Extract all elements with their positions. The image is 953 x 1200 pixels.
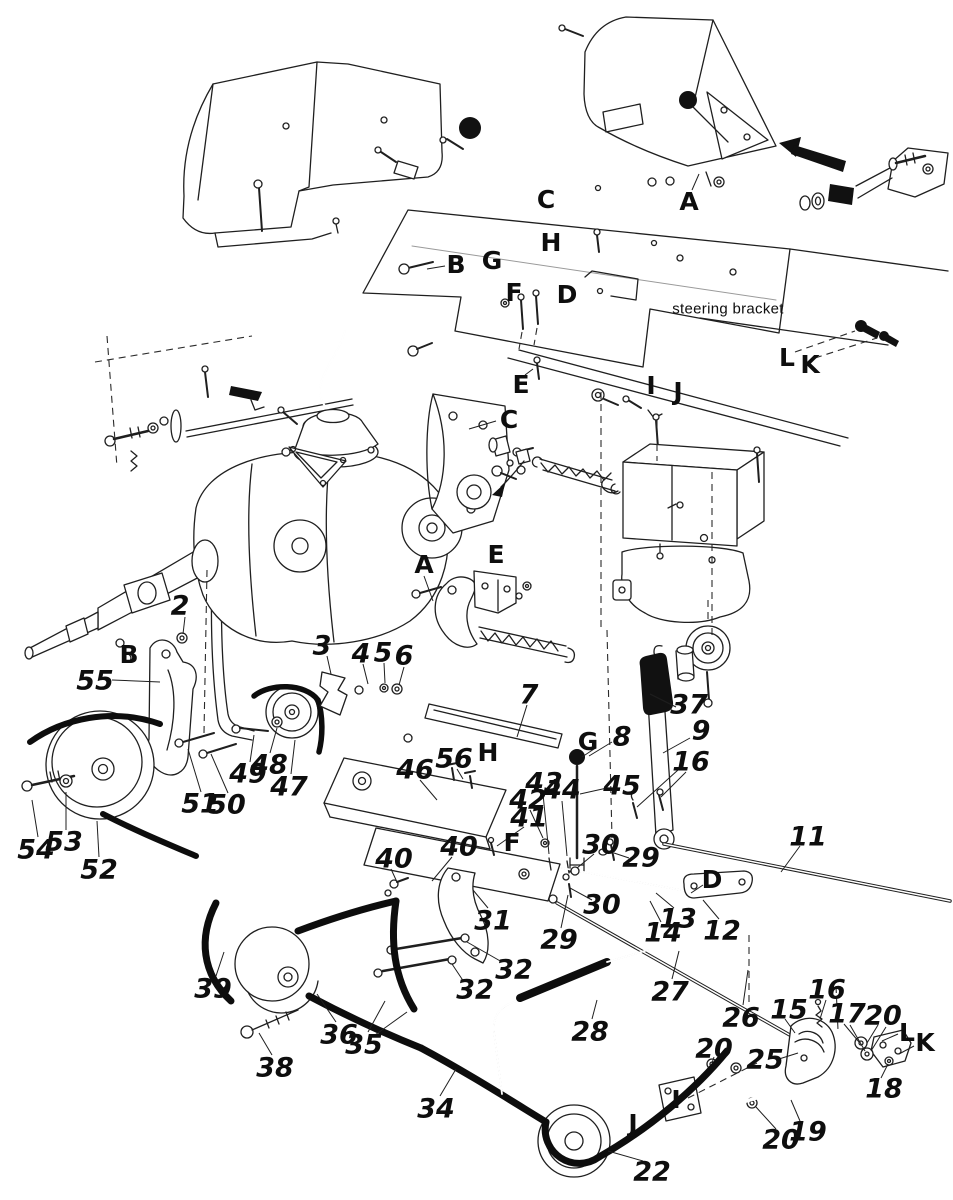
part-36: 36	[320, 1019, 358, 1050]
ref-J-bot: J	[626, 1109, 637, 1138]
ref-C-mid: C	[500, 405, 518, 434]
part-30b: 30	[583, 889, 621, 920]
support-plate-C	[432, 394, 509, 533]
part-26: 26	[722, 1002, 760, 1033]
leader-line	[672, 951, 679, 979]
ref-K-top: K	[800, 350, 821, 379]
lever-grip	[640, 653, 674, 715]
leader-line	[743, 970, 748, 1005]
ref-A-top: A	[679, 187, 699, 216]
knob-ball-left	[459, 117, 481, 139]
part-30a: 30	[582, 829, 620, 860]
knob-ball-right	[679, 91, 697, 109]
part-27: 27	[651, 976, 689, 1007]
part-40a: 40	[439, 831, 478, 862]
ref-H-top: H	[541, 228, 562, 257]
part-25: 25	[746, 1044, 784, 1075]
part-55: 55	[76, 665, 114, 696]
part-18: 18	[865, 1073, 903, 1104]
ref-E-mid: E	[487, 540, 504, 569]
part-44: 44	[542, 774, 581, 805]
leader-line	[97, 821, 99, 857]
ref-J-top: J	[671, 377, 682, 406]
part-20c: 20	[762, 1124, 800, 1155]
ref-I-bot: I	[671, 1085, 680, 1114]
ref-L-top: L	[779, 343, 795, 372]
part-29a: 29	[622, 842, 660, 873]
part-5: 5	[374, 637, 393, 668]
nut-2	[177, 633, 187, 643]
leader-line	[211, 754, 228, 793]
ref-D-top: D	[557, 280, 578, 309]
ref-F-top: F	[505, 278, 522, 307]
leader-line	[216, 952, 224, 976]
shifter-cover	[559, 17, 776, 191]
ref-B-left: B	[119, 640, 138, 669]
part-29b: 29	[540, 924, 578, 955]
ref-E-top: E	[512, 370, 529, 399]
double-pulley-36	[235, 927, 309, 1001]
roller-black	[828, 184, 854, 205]
part-16a: 16	[672, 746, 710, 777]
clip-3	[320, 672, 347, 715]
leader-line	[561, 895, 568, 928]
part-14: 14	[644, 917, 682, 948]
part-11: 11	[789, 821, 827, 852]
construction-line	[107, 336, 117, 467]
channel-box-bracket	[623, 462, 737, 546]
ref-G-mid: G	[578, 727, 599, 756]
construction-line	[95, 336, 252, 362]
bracket-55	[148, 640, 197, 775]
exploded-parts-diagram: steering bracketCAHBGFDLKEIJCEABGHFDLKIJ…	[0, 0, 953, 1200]
part-38: 38	[256, 1052, 294, 1083]
part-22: 22	[633, 1156, 671, 1187]
part-45: 45	[602, 770, 641, 801]
part-20a: 20	[864, 1000, 902, 1031]
leader-line	[291, 740, 295, 774]
construction-line	[815, 338, 877, 358]
part-54: 54	[17, 834, 55, 865]
diagram-canvas: steering bracketCAHBGFDLKEIJCEABGHFDLKIJ…	[0, 0, 953, 1200]
part-32b: 32	[456, 974, 494, 1005]
part-7: 7	[520, 679, 539, 710]
part-34: 34	[417, 1093, 455, 1124]
part-17: 17	[828, 998, 866, 1029]
leader-line	[562, 801, 567, 856]
ref-B-top: B	[446, 250, 465, 279]
part-12: 12	[703, 915, 741, 946]
bolt-B	[399, 264, 409, 274]
bracket-E	[474, 571, 516, 613]
ref-I-top: I	[646, 371, 655, 400]
part-39: 39	[194, 973, 232, 1004]
part-56: 56	[435, 743, 473, 774]
ref-A-mid: A	[414, 550, 434, 579]
part-3: 3	[313, 630, 332, 661]
part-6: 6	[395, 640, 414, 671]
note-steering-bracket: steering bracket	[672, 300, 784, 317]
part-37: 37	[670, 689, 708, 720]
ref-K-bot: K	[915, 1028, 936, 1057]
ref-G-top: G	[482, 246, 503, 275]
part-40b: 40	[374, 843, 413, 874]
idler-mount-group	[602, 414, 764, 707]
ref-D-mid: D	[702, 865, 723, 894]
part-2: 2	[171, 590, 190, 621]
construction-line	[607, 630, 612, 838]
part-20b: 20	[695, 1033, 733, 1064]
idler-bracket-plate	[622, 546, 750, 622]
part-31: 31	[474, 905, 512, 936]
part-28: 28	[571, 1016, 609, 1047]
rod-28-grip	[520, 962, 607, 998]
pointer-arrow	[779, 137, 846, 172]
part-15: 15	[770, 994, 808, 1025]
part-4: 4	[351, 638, 371, 669]
part-32a: 32	[495, 954, 533, 985]
leader-line	[440, 1069, 456, 1096]
part-52: 52	[80, 854, 118, 885]
ref-C-top: C	[537, 185, 555, 214]
part-49: 49	[228, 758, 267, 789]
part-51: 51	[181, 788, 219, 819]
part-46: 46	[395, 754, 434, 785]
ref-H-mid: H	[478, 738, 499, 767]
leader-line	[32, 800, 38, 837]
part-8: 8	[613, 721, 632, 752]
